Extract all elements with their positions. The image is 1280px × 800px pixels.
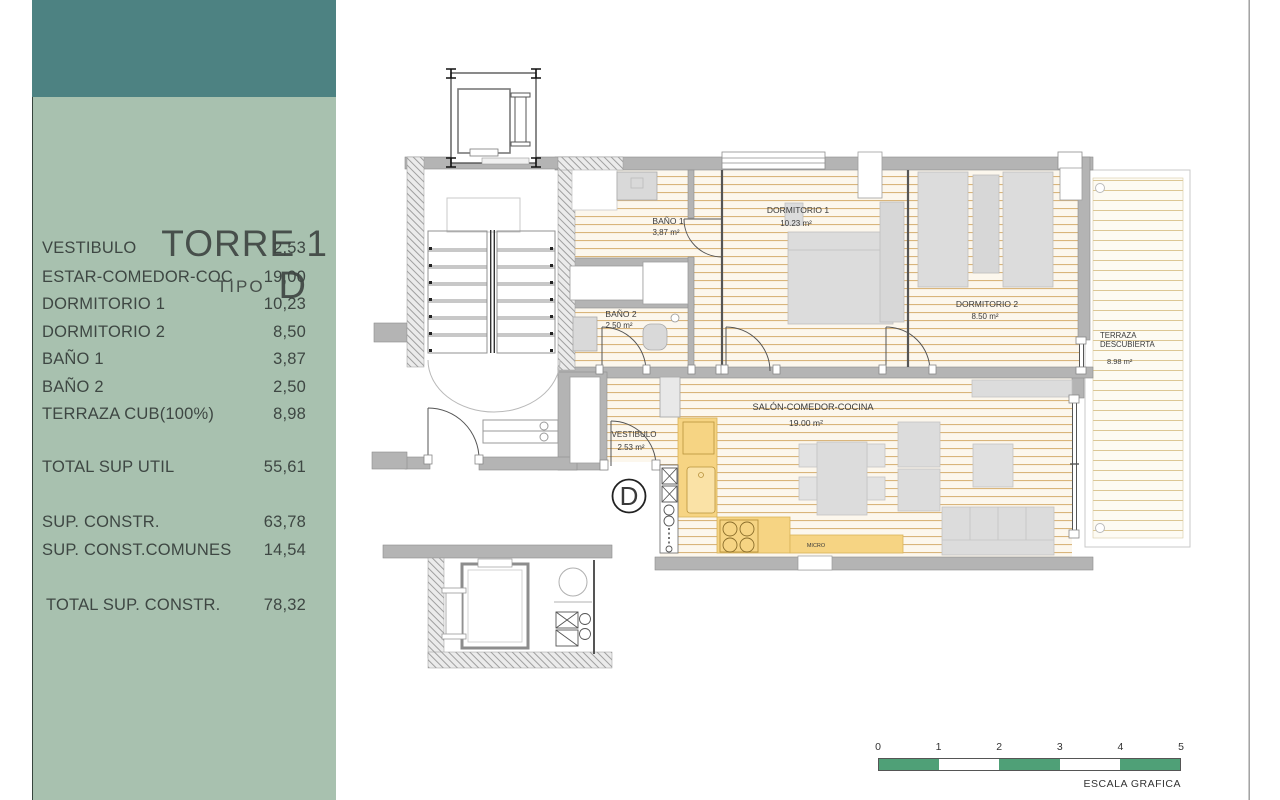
- scale-tick-4: 4: [1114, 741, 1126, 753]
- sidebar-panel: TORRE 1 TIPOD VESTIBULO2,53 ESTAR-COMEDO…: [32, 97, 336, 800]
- window-top-dorm1: [722, 152, 825, 169]
- scale-tick-5: 5: [1175, 741, 1187, 753]
- salon-name: SALÓN-COMEDOR-COCINA: [753, 402, 875, 412]
- dorm2-furniture: [918, 172, 1053, 287]
- micro-label: MICRO: [807, 543, 826, 549]
- graphic-scale: 0 1 2 3 4 5 ESCALA GRAFICA: [878, 741, 1181, 791]
- bano2-name: BAÑO 2: [605, 309, 636, 319]
- vestibule-closet: [570, 377, 600, 463]
- sheet-frame-line: [1249, 0, 1250, 800]
- scale-segment: [1060, 759, 1120, 770]
- scale-segment: [939, 759, 999, 770]
- area-row-bano2: BAÑO 22,50: [42, 378, 306, 397]
- area-row-dorm2: DORMITORIO 28,50: [42, 323, 306, 342]
- terraza-area: 8.98 m²: [1107, 357, 1133, 366]
- unit-letter: D: [620, 481, 639, 511]
- terraza-name-2: DESCUBIERTA: [1100, 340, 1156, 349]
- salon-area: 19.00 m²: [789, 418, 823, 428]
- scale-segment: [879, 759, 939, 770]
- area-row-terraza: TERRAZA CUB(100%)8,98: [42, 405, 306, 424]
- sup-comunes-row: SUP. CONST.COMUNES14,54: [42, 541, 306, 560]
- elevator-bottom: [442, 559, 528, 648]
- scale-tick-3: 3: [1054, 741, 1066, 753]
- dorm1-area: 10.23 m²: [780, 219, 812, 228]
- scale-segment: [999, 759, 1059, 770]
- dorm2-area: 8.50 m²: [971, 312, 998, 321]
- scale-caption: ESCALA GRAFICA: [1084, 778, 1181, 790]
- total-constr-row: TOTAL SUP. CONSTR.78,32: [46, 596, 306, 615]
- floor-plan-drawing: D MICRO: [370, 0, 1280, 800]
- stair-door: [424, 408, 483, 464]
- balcony-door-sill: [798, 556, 832, 570]
- utility-cabinet-column: [660, 377, 680, 553]
- sup-constr-row: SUP. CONSTR.63,78: [42, 513, 306, 532]
- vestibulo-name: VESTIBULO: [612, 430, 657, 439]
- area-row-dorm1: DORMITORIO 110,23: [42, 295, 306, 314]
- area-row-bano1: BAÑO 13,87: [42, 350, 306, 369]
- scale-bar-strip: [878, 758, 1181, 771]
- sidebar-header-band: [32, 0, 336, 97]
- unit-letter-badge: D: [613, 480, 646, 513]
- terrace-area: [1085, 170, 1190, 547]
- closet-column-dorm1: [858, 152, 882, 198]
- area-row-vestibulo: VESTIBULO2,53: [42, 239, 306, 258]
- window-top-dorm2: [1058, 152, 1082, 200]
- scale-tick-0: 0: [872, 741, 884, 753]
- bano1-name: BAÑO 1: [652, 216, 683, 226]
- area-row-estar: ESTAR-COMEDOR-COC19,00: [42, 268, 306, 287]
- stair-treads: [428, 249, 555, 336]
- stair-landing-counter: [483, 420, 558, 443]
- terraza-name-1: TERRAZA: [1100, 331, 1137, 340]
- bano2-area: 2.50 m²: [605, 321, 632, 330]
- elevator-top: [446, 69, 541, 167]
- scale-tick-2: 2: [993, 741, 1005, 753]
- plan-sheet: TORRE 1 TIPOD VESTIBULO2,53 ESTAR-COMEDO…: [0, 0, 1280, 800]
- bano1-area: 3,87 m²: [652, 228, 679, 237]
- scale-segment: [1120, 759, 1180, 770]
- vestibulo-area: 2.53 m²: [617, 443, 644, 452]
- dorm2-name: DORMITORIO 2: [956, 299, 1018, 309]
- total-util-row: TOTAL SUP UTIL55,61: [42, 458, 306, 477]
- staircase: [428, 198, 560, 443]
- neighbor-bathroom: [554, 560, 595, 654]
- dorm1-name: DORMITORIO 1: [767, 205, 829, 215]
- scale-tick-1: 1: [933, 741, 945, 753]
